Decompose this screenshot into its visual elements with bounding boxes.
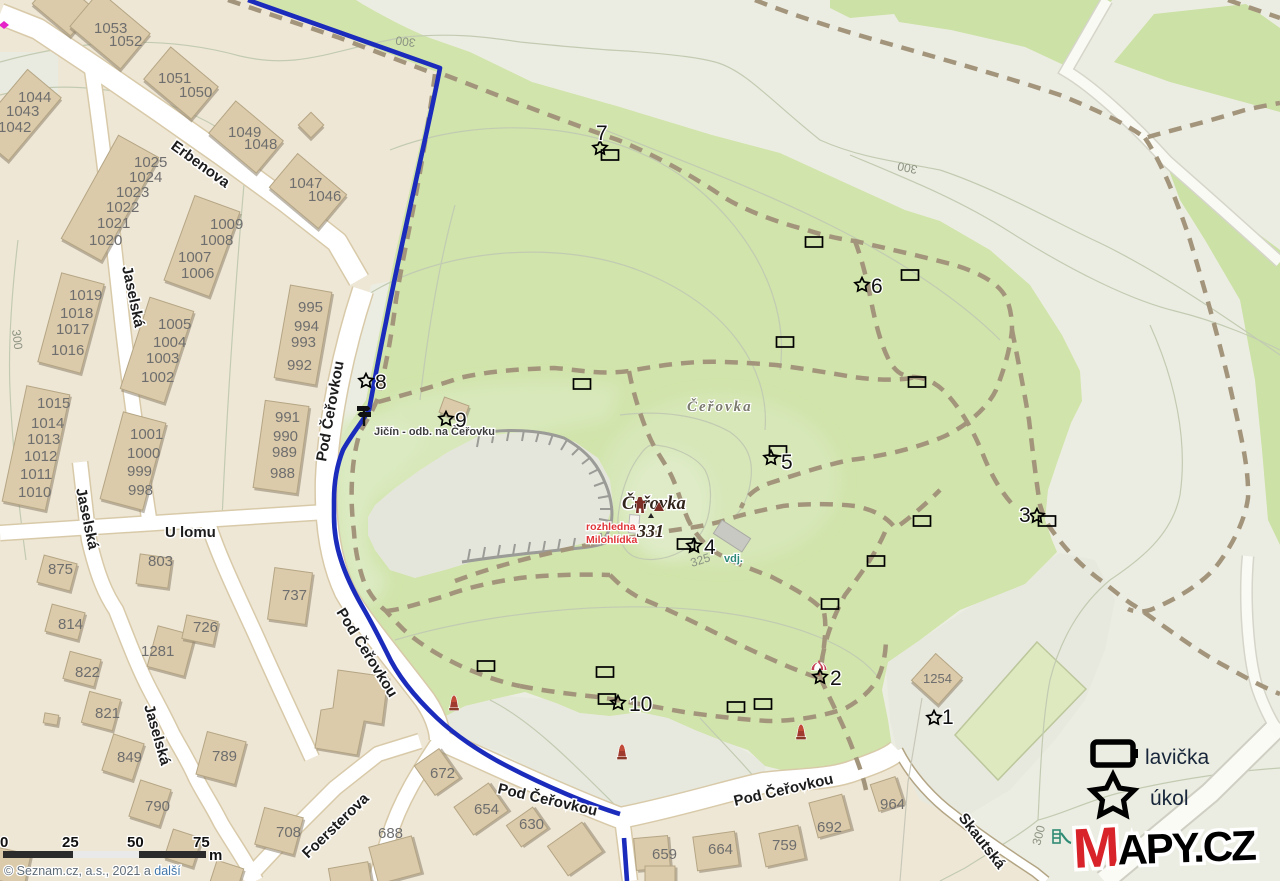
svg-text:U lomu: U lomu [165, 524, 216, 541]
svg-text:1048: 1048 [244, 136, 277, 153]
svg-text:1016: 1016 [51, 342, 84, 359]
svg-text:úkol: úkol [1150, 787, 1189, 810]
svg-text:1005: 1005 [158, 316, 191, 333]
svg-text:1011: 1011 [20, 466, 52, 483]
svg-text:692: 692 [817, 819, 842, 836]
svg-text:849: 849 [117, 749, 142, 766]
svg-text:Čeřovka: Čeřovka [687, 398, 753, 415]
svg-text:APY.CZ: APY.CZ [1117, 822, 1257, 874]
svg-text:995: 995 [298, 299, 323, 316]
svg-text:4: 4 [704, 536, 716, 559]
svg-text:6: 6 [871, 275, 883, 298]
svg-text:1012: 1012 [24, 448, 57, 465]
svg-text:25: 25 [62, 834, 79, 851]
svg-text:1015: 1015 [37, 395, 70, 412]
svg-text:664: 664 [708, 841, 733, 858]
svg-text:8: 8 [375, 371, 387, 394]
svg-text:1043: 1043 [6, 103, 39, 120]
svg-text:50: 50 [127, 834, 144, 851]
svg-text:875: 875 [48, 561, 73, 578]
svg-text:822: 822 [75, 664, 100, 681]
svg-text:10: 10 [629, 693, 652, 716]
svg-text:659: 659 [652, 846, 677, 863]
svg-text:© Seznam.cz, a.s., 2021 a dalš: © Seznam.cz, a.s., 2021 a další [4, 864, 181, 878]
svg-text:814: 814 [58, 616, 83, 633]
svg-text:vdj.: vdj. [724, 553, 743, 565]
svg-text:1009: 1009 [210, 216, 243, 233]
svg-text:1014: 1014 [31, 415, 64, 432]
svg-text:998: 998 [128, 482, 153, 499]
svg-text:1: 1 [942, 706, 954, 729]
svg-text:688: 688 [378, 825, 403, 842]
svg-text:1013: 1013 [27, 431, 60, 448]
svg-text:1003: 1003 [146, 350, 179, 367]
svg-text:708: 708 [276, 824, 301, 841]
svg-text:1020: 1020 [89, 232, 122, 249]
svg-text:5: 5 [781, 451, 793, 474]
svg-text:2: 2 [830, 667, 842, 690]
svg-text:9: 9 [455, 409, 467, 432]
svg-text:630: 630 [519, 816, 544, 833]
svg-text:991: 991 [275, 409, 300, 426]
svg-text:300: 300 [9, 329, 25, 351]
svg-text:759: 759 [772, 837, 797, 854]
svg-text:lavička: lavička [1145, 746, 1210, 769]
svg-text:0: 0 [0, 834, 8, 851]
svg-text:726: 726 [193, 619, 218, 636]
svg-text:1000: 1000 [127, 445, 160, 462]
svg-text:989: 989 [272, 444, 297, 461]
svg-text:1254: 1254 [923, 671, 952, 686]
svg-text:1008: 1008 [200, 232, 233, 249]
svg-text:7: 7 [596, 122, 608, 145]
svg-text:Milohlídka: Milohlídka [586, 534, 637, 546]
svg-text:790: 790 [145, 798, 170, 815]
svg-text:994: 994 [294, 318, 319, 335]
svg-text:1052: 1052 [109, 33, 142, 50]
svg-text:1018: 1018 [60, 305, 93, 322]
svg-text:rozhledna: rozhledna [586, 521, 636, 533]
svg-text:1002: 1002 [141, 369, 174, 386]
svg-text:988: 988 [270, 465, 295, 482]
svg-text:M: M [1071, 815, 1121, 880]
svg-text:3: 3 [1019, 504, 1031, 527]
svg-text:1022: 1022 [106, 199, 139, 216]
svg-text:75: 75 [193, 834, 210, 851]
svg-text:300: 300 [394, 33, 416, 50]
svg-text:672: 672 [430, 765, 455, 782]
svg-text:1050: 1050 [179, 84, 212, 101]
svg-text:821: 821 [95, 705, 120, 722]
svg-text:Jičín - odb. na Čeřovku: Jičín - odb. na Čeřovku [374, 425, 495, 438]
svg-text:654: 654 [474, 801, 499, 818]
svg-text:1001: 1001 [130, 426, 163, 443]
svg-text:1281: 1281 [141, 643, 174, 660]
svg-text:737: 737 [282, 587, 307, 604]
svg-text:1010: 1010 [18, 484, 51, 501]
svg-text:1046: 1046 [308, 188, 341, 205]
svg-text:331: 331 [636, 521, 664, 541]
svg-text:789: 789 [212, 748, 237, 765]
svg-text:1021: 1021 [97, 215, 130, 232]
svg-text:1006: 1006 [181, 265, 214, 282]
svg-text:1019: 1019 [69, 287, 102, 304]
svg-text:1017: 1017 [56, 321, 89, 338]
svg-text:1004: 1004 [153, 334, 186, 351]
svg-text:990: 990 [273, 428, 298, 445]
svg-text:m: m [209, 847, 222, 864]
svg-text:993: 993 [291, 334, 316, 351]
svg-text:803: 803 [148, 553, 173, 570]
svg-text:964: 964 [880, 796, 905, 813]
svg-text:999: 999 [127, 463, 152, 480]
svg-text:992: 992 [287, 357, 312, 374]
svg-text:1007: 1007 [178, 249, 211, 266]
svg-text:1042: 1042 [0, 119, 31, 136]
